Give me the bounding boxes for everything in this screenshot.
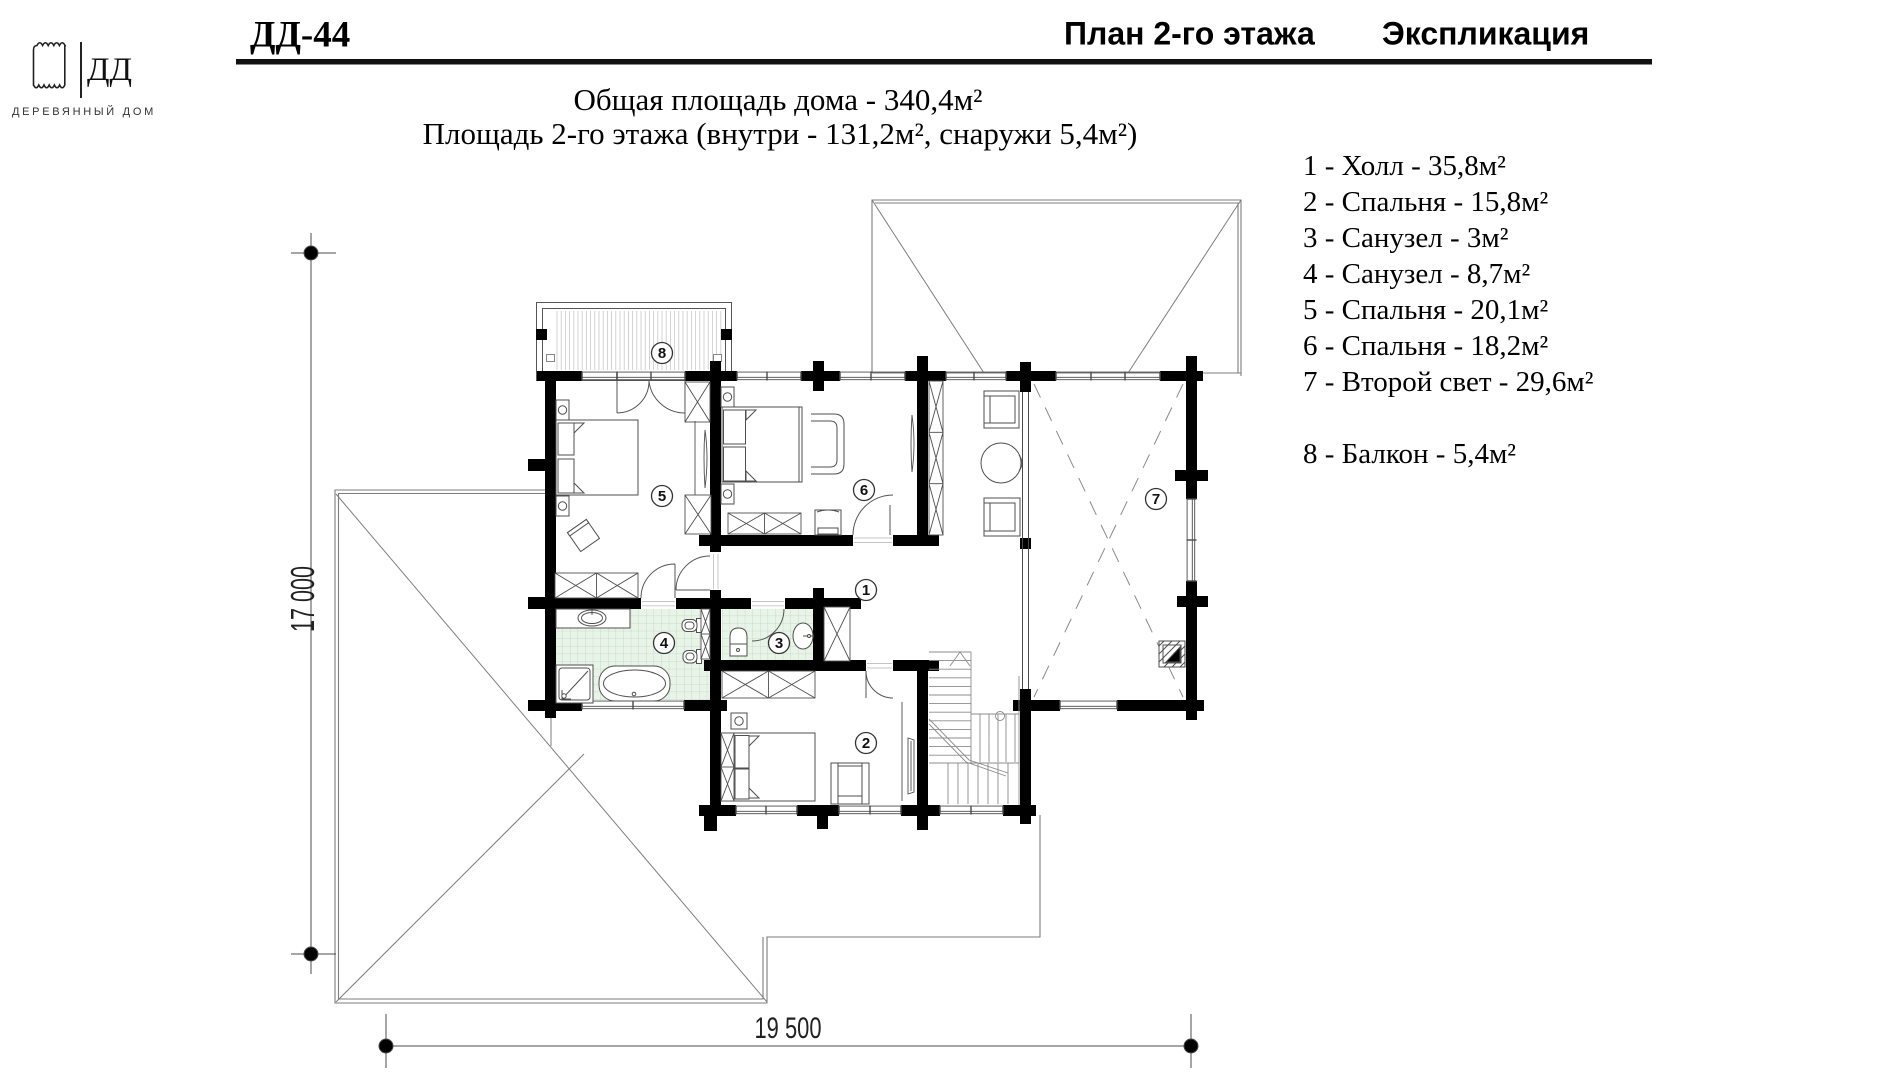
svg-text:Площадь 2-го этажа (внутри - 1: Площадь 2-го этажа (внутри - 131,2м², сн… xyxy=(423,116,1138,151)
svg-text:5 - Спальня - 20,1м²: 5 - Спальня - 20,1м² xyxy=(1303,294,1548,326)
svg-text:19 500: 19 500 xyxy=(755,1012,822,1045)
svg-text:8 - Балкон - 5,4м²: 8 - Балкон - 5,4м² xyxy=(1303,438,1516,470)
svg-text:6: 6 xyxy=(860,482,868,499)
svg-text:4: 4 xyxy=(660,635,669,652)
svg-text:5: 5 xyxy=(658,488,666,505)
svg-text:ДЕРЕВЯННЫЙ ДОМ: ДЕРЕВЯННЫЙ ДОМ xyxy=(12,105,156,118)
svg-text:2: 2 xyxy=(862,735,870,752)
svg-text:2 - Спальня - 15,8м²: 2 - Спальня - 15,8м² xyxy=(1303,186,1548,218)
svg-text:7 - Второй свет - 29,6м²: 7 - Второй свет - 29,6м² xyxy=(1303,366,1594,398)
svg-text:Экспликация: Экспликация xyxy=(1382,16,1589,52)
svg-text:1: 1 xyxy=(862,582,870,599)
svg-text:4 - Санузел - 8,7м²: 4 - Санузел - 8,7м² xyxy=(1303,258,1530,290)
svg-text:8: 8 xyxy=(658,345,666,362)
svg-text:Общая площадь дома - 340,4м²: Общая площадь дома - 340,4м² xyxy=(574,82,983,117)
svg-text:6 - Спальня - 18,2м²: 6 - Спальня - 18,2м² xyxy=(1303,330,1548,362)
svg-text:ДД-44: ДД-44 xyxy=(250,15,350,56)
svg-text:3: 3 xyxy=(775,635,783,652)
svg-text:17 000: 17 000 xyxy=(284,566,321,632)
svg-text:План 2-го этажа: План 2-го этажа xyxy=(1064,16,1315,52)
svg-text:7: 7 xyxy=(1152,491,1160,508)
svg-text:1 - Холл - 35,8м²: 1 - Холл - 35,8м² xyxy=(1303,150,1506,182)
svg-text:ДД: ДД xyxy=(87,52,132,88)
svg-text:3 - Санузел - 3м²: 3 - Санузел - 3м² xyxy=(1303,222,1509,254)
